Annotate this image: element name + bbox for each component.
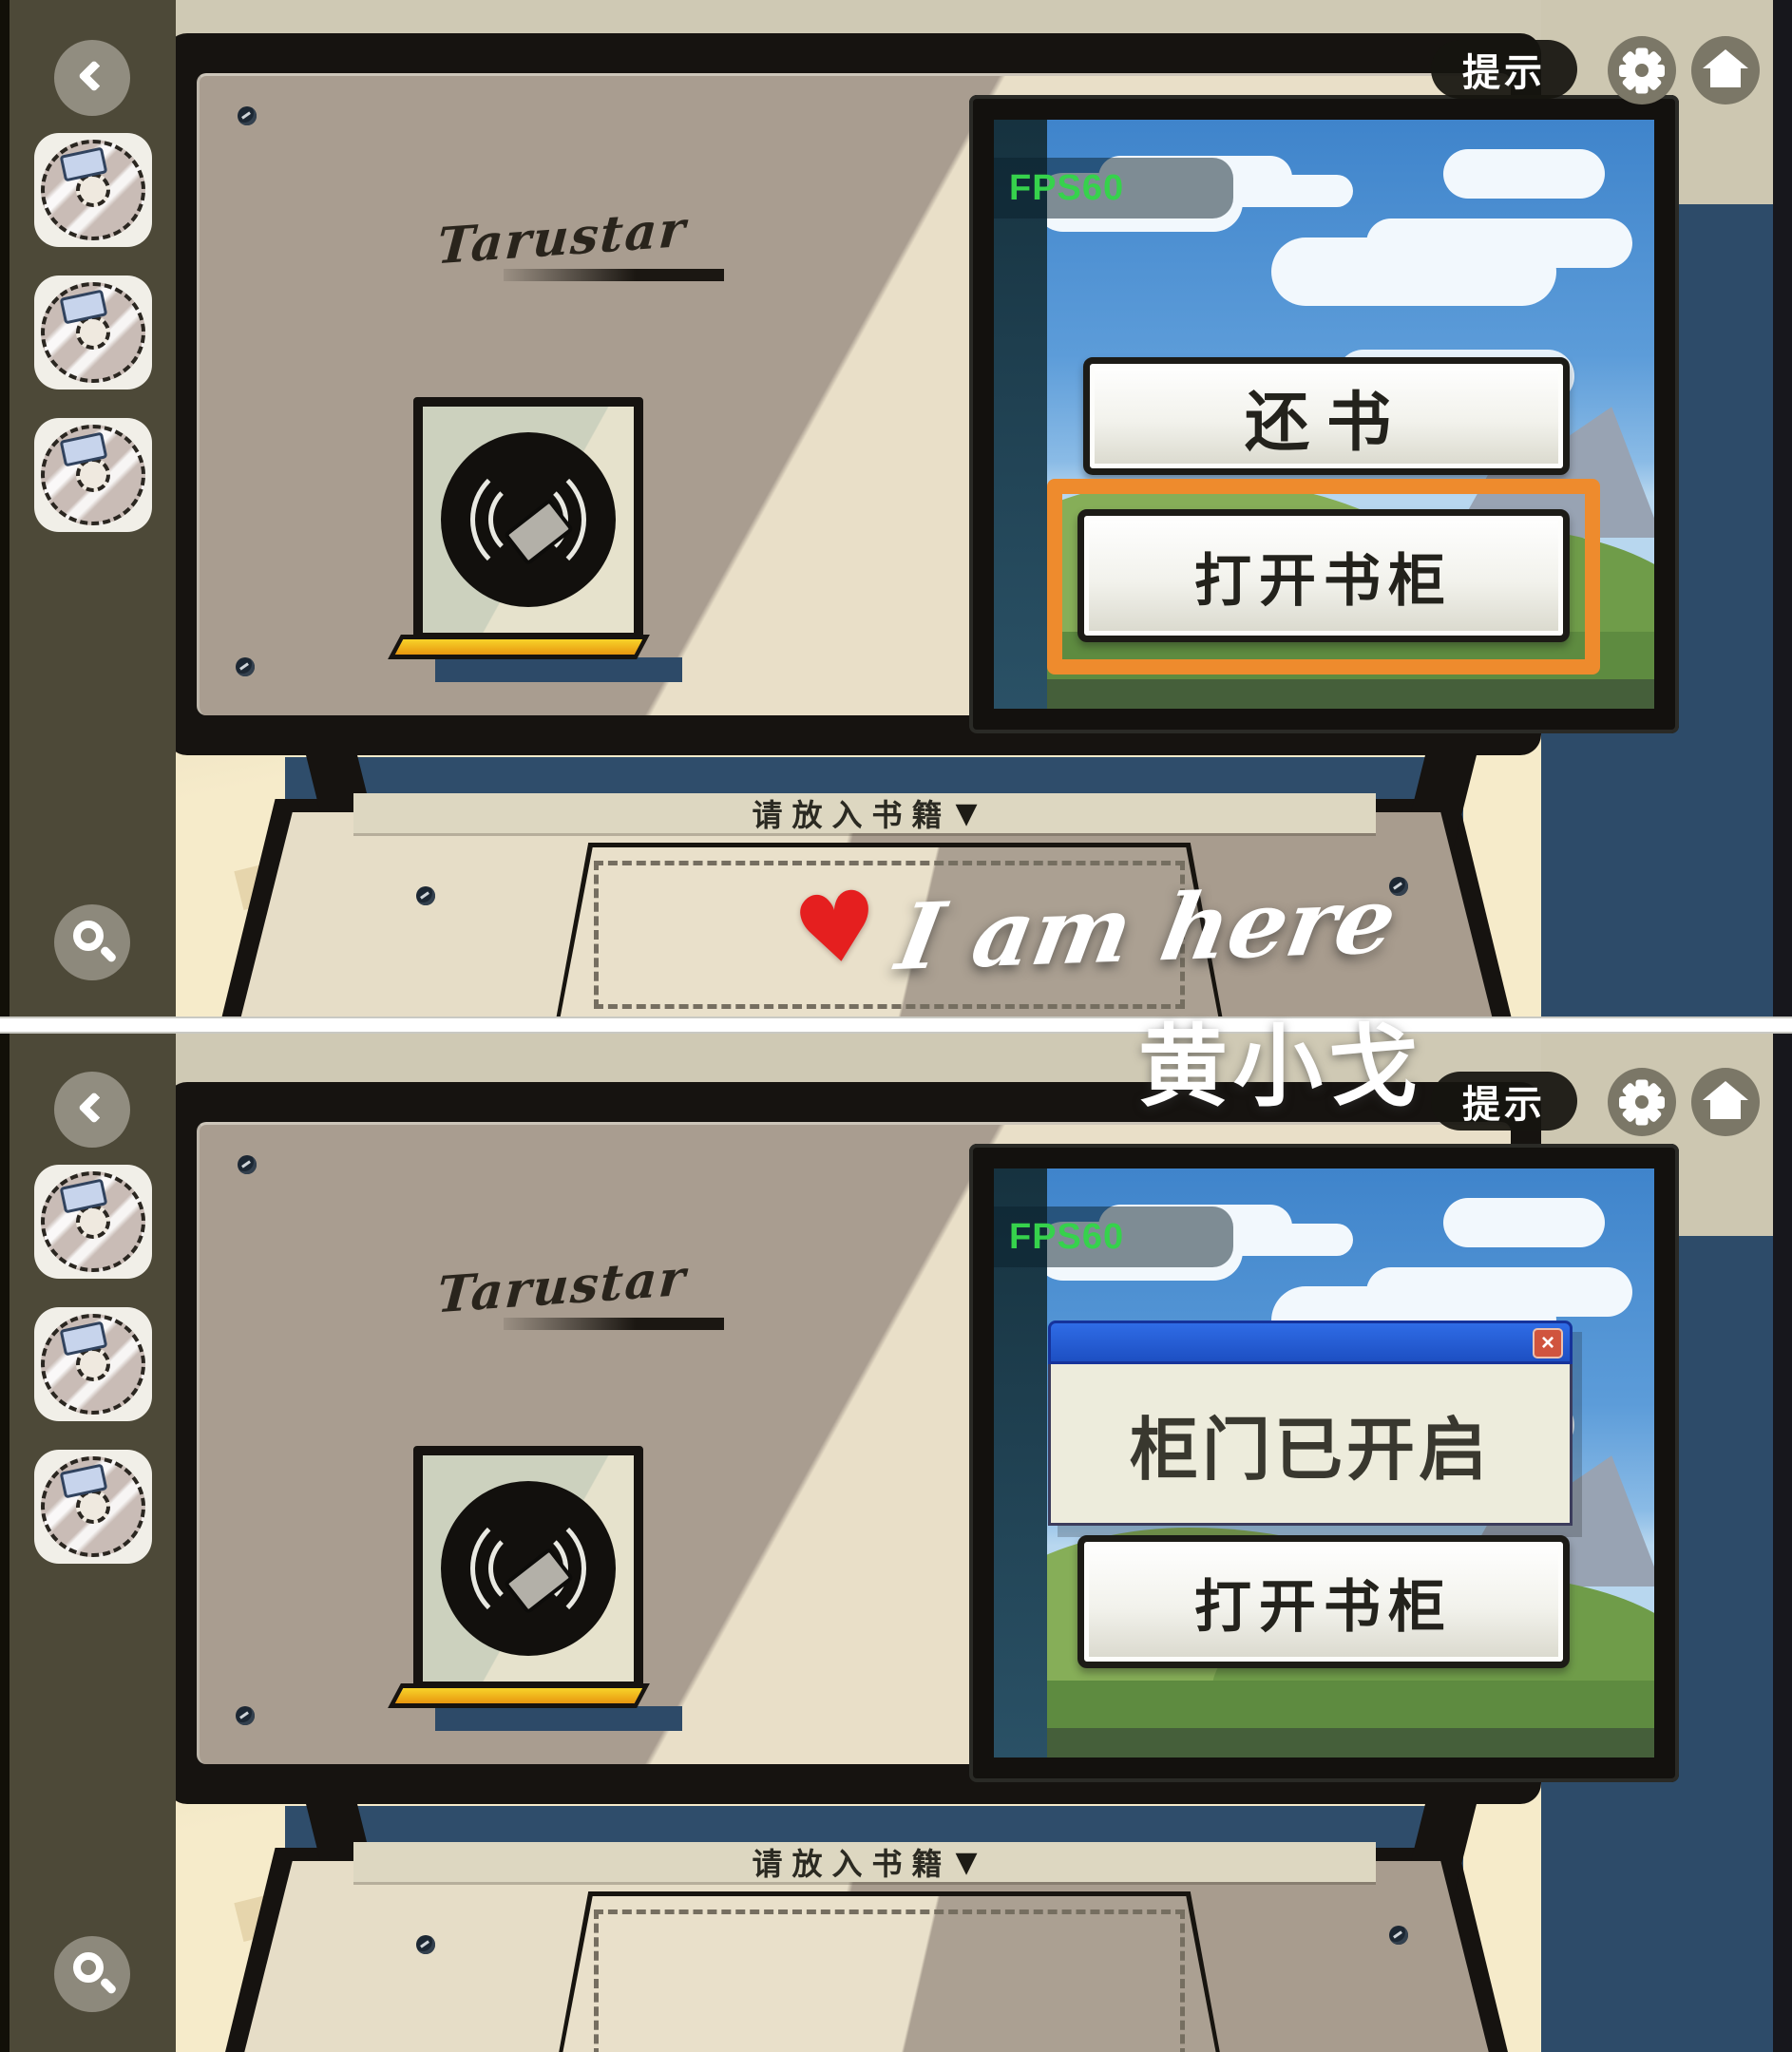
magnifier-icon xyxy=(73,921,104,951)
inventory-disc-3[interactable] xyxy=(34,418,152,532)
inventory-disc-2[interactable] xyxy=(34,275,152,389)
home-button[interactable] xyxy=(1691,36,1760,104)
open-bookcase-button[interactable]: 打开书柜 xyxy=(1077,1535,1570,1668)
slot-label-text: 请放入书籍 xyxy=(752,791,951,835)
hint-button[interactable]: 提示 xyxy=(1431,1072,1577,1130)
screw-icon xyxy=(236,657,255,676)
settings-button[interactable] xyxy=(1608,36,1676,104)
dialog-close-button[interactable]: × xyxy=(1533,1328,1563,1358)
yellow-slot xyxy=(388,1683,650,1708)
book-slot-label: 请放入书籍 ▼ xyxy=(353,793,1376,833)
home-button[interactable] xyxy=(1691,1068,1760,1136)
inventory-disc-2[interactable] xyxy=(34,1307,152,1421)
grass-shadow xyxy=(994,1728,1654,1757)
highlight-frame xyxy=(1047,479,1600,674)
inventory-sidebar xyxy=(10,1032,176,2052)
brand-logo-text: Tarustar xyxy=(435,1249,689,1325)
screen-wallpaper: FPS60 × 柜门已开启 打开书柜 xyxy=(994,1168,1654,1757)
home-icon xyxy=(1703,49,1748,68)
screw-icon xyxy=(416,886,435,905)
monitor-screen: FPS60 × 柜门已开启 打开书柜 xyxy=(969,1144,1679,1782)
magnifier-handle xyxy=(99,1977,117,1995)
vinyl-disc-icon xyxy=(441,1481,616,1656)
cloud xyxy=(1443,1198,1605,1247)
slot-label-text: 请放入书籍 xyxy=(752,1840,951,1884)
home-icon xyxy=(1703,1081,1748,1100)
screenshot-root: Tarustar xyxy=(0,0,1792,2052)
kiosk-machine: Tarustar xyxy=(0,1082,1792,2052)
down-arrow-icon: ▼ xyxy=(955,1846,977,1879)
screenshot-bottom: Tarustar xyxy=(0,1032,1792,2052)
back-button[interactable] xyxy=(54,1072,130,1148)
book-slot-label: 请放入书籍 ▼ xyxy=(353,1842,1376,1882)
chevron-left-icon xyxy=(78,1092,110,1124)
settings-button[interactable] xyxy=(1608,1068,1676,1136)
slot-shadow xyxy=(435,1706,682,1731)
magnifier-handle xyxy=(99,945,117,963)
inventory-disc-1[interactable] xyxy=(34,1165,152,1279)
cd-disc-icon xyxy=(41,282,145,383)
book-tray[interactable] xyxy=(555,1891,1224,2052)
gear-icon xyxy=(1625,53,1659,87)
screw-icon xyxy=(416,1935,435,1954)
screen-wallpaper: FPS60 还书 打开书柜 xyxy=(994,120,1654,709)
kiosk-monitor: Tarustar xyxy=(166,33,1541,755)
brand-logo-text: Tarustar xyxy=(435,200,689,276)
hint-button[interactable]: 提示 xyxy=(1431,40,1577,99)
fps-label: FPS60 xyxy=(1009,1217,1124,1258)
screw-icon xyxy=(1389,1926,1408,1945)
fps-counter: FPS60 xyxy=(994,158,1233,218)
left-edge xyxy=(0,0,10,1018)
screw-icon xyxy=(238,106,257,125)
zoom-search-button[interactable] xyxy=(54,904,130,980)
yellow-slot xyxy=(388,635,650,659)
return-book-button[interactable]: 还书 xyxy=(1083,357,1570,475)
inventory-disc-3[interactable] xyxy=(34,1450,152,1564)
kiosk-monitor: Tarustar xyxy=(166,1082,1541,1804)
home-icon xyxy=(1710,1098,1741,1119)
cd-disc-icon xyxy=(41,1314,145,1415)
record-scanner[interactable] xyxy=(413,397,643,642)
brand-logo-bar xyxy=(504,269,724,281)
brand-logo: Tarustar xyxy=(437,209,779,281)
dialog-message: 柜门已开启 xyxy=(1130,1394,1491,1493)
fps-label: FPS60 xyxy=(1009,168,1124,209)
system-dialog: × 柜门已开启 xyxy=(1048,1320,1573,1526)
heart-icon: ♥ xyxy=(788,876,886,982)
screw-icon xyxy=(238,1155,257,1174)
zoom-search-button[interactable] xyxy=(54,1936,130,2012)
screw-icon xyxy=(236,1706,255,1725)
dialog-body: 柜门已开启 xyxy=(1048,1364,1573,1526)
cd-disc-icon xyxy=(41,1456,145,1557)
book-tray-face xyxy=(560,1896,1219,2052)
brand-logo-bar xyxy=(504,1318,724,1330)
home-icon xyxy=(1710,66,1741,87)
cd-disc-icon xyxy=(41,425,145,525)
fps-counter: FPS60 xyxy=(994,1206,1233,1267)
cloud xyxy=(1443,149,1605,199)
brand-logo: Tarustar xyxy=(437,1258,779,1330)
cd-disc-icon xyxy=(41,1171,145,1272)
vinyl-disc-icon xyxy=(441,432,616,607)
slot-shadow xyxy=(435,657,682,682)
signature-text: 黄小戈 xyxy=(1138,1020,1423,1114)
record-scanner[interactable] xyxy=(413,1446,643,1691)
book-tray-outline xyxy=(594,1909,1185,2052)
monitor-screen: FPS60 还书 打开书柜 xyxy=(969,95,1679,733)
down-arrow-icon: ▼ xyxy=(955,797,977,830)
left-edge xyxy=(0,1032,10,2052)
inventory-sidebar xyxy=(10,0,176,1018)
kiosk-machine: Tarustar xyxy=(0,33,1792,1018)
dialog-titlebar: × xyxy=(1048,1320,1573,1364)
cd-disc-icon xyxy=(41,140,145,240)
inventory-disc-1[interactable] xyxy=(34,133,152,247)
annotation-text: I am here xyxy=(890,875,1402,983)
grass-shadow xyxy=(994,679,1654,709)
cloud xyxy=(1271,237,1556,306)
chevron-left-icon xyxy=(78,60,110,92)
magnifier-icon xyxy=(73,1952,104,1983)
handwritten-annotation: ♥ I am here xyxy=(794,882,1393,977)
back-button[interactable] xyxy=(54,40,130,116)
screenshot-top: Tarustar xyxy=(0,0,1792,1018)
screenshot-divider xyxy=(0,1018,1792,1032)
gear-icon xyxy=(1625,1085,1659,1119)
